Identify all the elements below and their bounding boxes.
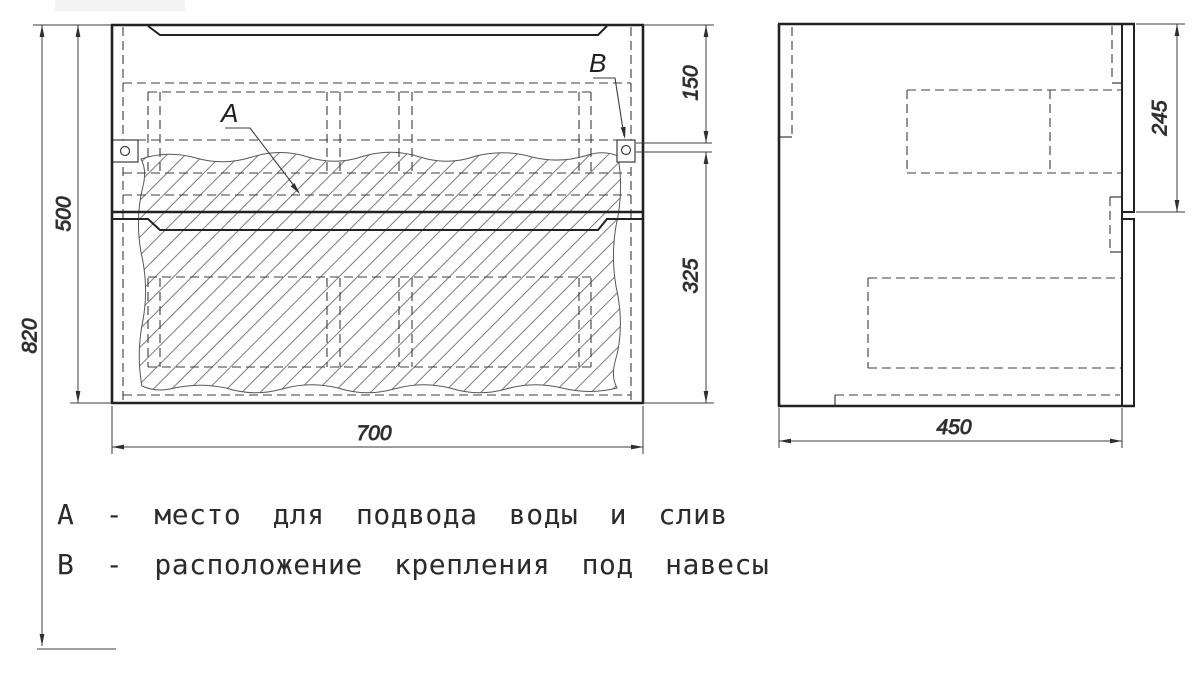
drawer1-handle-recess	[148, 26, 607, 35]
dimension-cabinet-depth: 450	[779, 408, 1122, 448]
dimension-drawer-front-height: 245	[1136, 24, 1185, 212]
drawing-canvas: 820 500 150 325 700	[0, 0, 1200, 685]
faint-watermark	[55, 0, 185, 11]
dim-label-325: 325	[680, 258, 703, 293]
mount-hole-right	[622, 146, 631, 155]
dimension-cabinet-width: 700	[112, 406, 643, 454]
dim-label-150: 150	[680, 65, 703, 100]
mount-hole-left	[121, 147, 130, 156]
dimension-bracket-to-bottom: 325	[680, 152, 709, 403]
dim-label-820: 820	[19, 318, 42, 353]
side-outline	[778, 24, 1135, 406]
callout-b: В	[589, 48, 626, 139]
front-view	[111, 25, 712, 403]
note-b: В - расположение крепления под навесы	[57, 548, 769, 581]
dimension-total-height: 820	[19, 25, 45, 646]
mount-hole-leader-lines	[636, 143, 712, 152]
plumbing-area-hatch	[138, 152, 620, 393]
side-hidden-lines	[792, 26, 1122, 395]
dimension-cabinet-height: 500	[53, 25, 81, 403]
callout-a-label: А	[219, 98, 238, 128]
dim-label-245: 245	[1149, 100, 1172, 136]
mount-bracket-right	[617, 140, 635, 162]
dim-label-500: 500	[53, 196, 76, 231]
dim-label-450: 450	[936, 416, 971, 439]
dimension-top-to-bracket: 150	[680, 25, 709, 143]
side-view	[778, 24, 1135, 406]
dim-label-700: 700	[356, 422, 391, 445]
technical-drawing-page: { "drawing": { "type": "furniture techni…	[0, 0, 1200, 685]
note-a: А - место для подвода воды и слив	[57, 498, 728, 531]
side-thin-solid	[779, 83, 1123, 406]
callout-b-label: В	[589, 48, 606, 78]
mount-bracket-left	[112, 140, 138, 162]
